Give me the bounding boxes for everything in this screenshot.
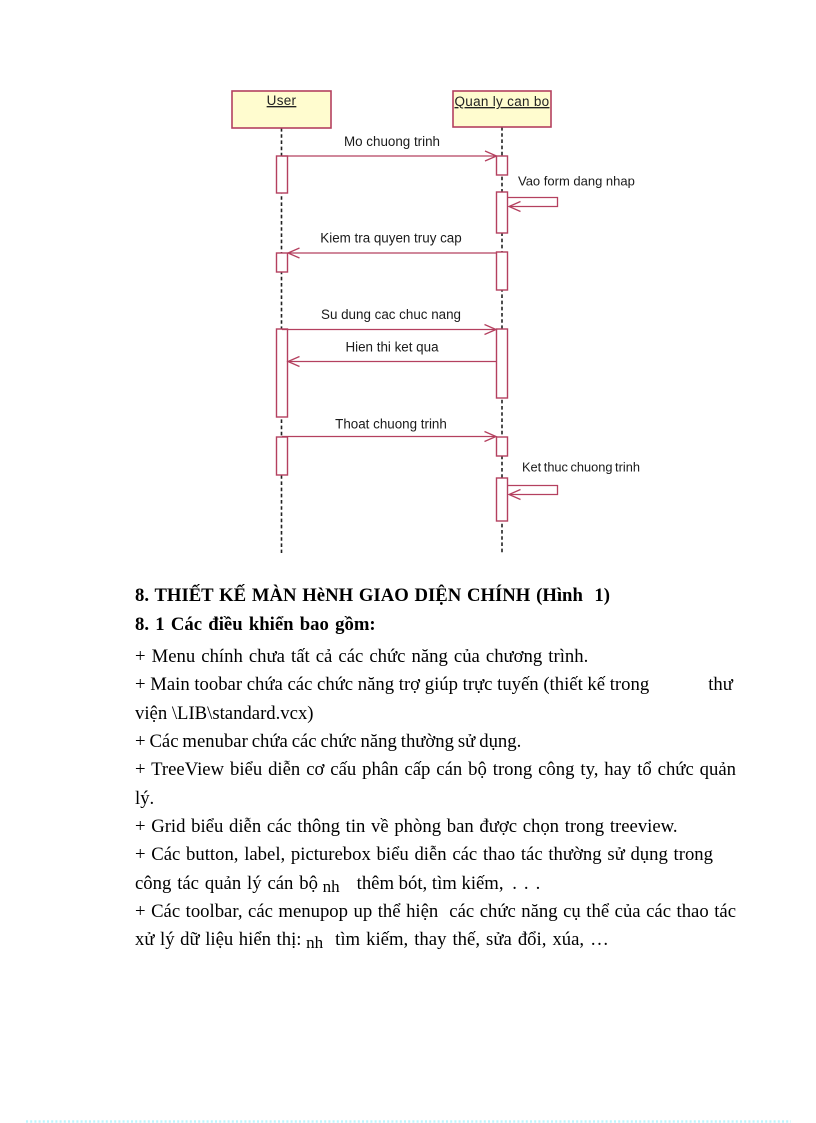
svg-text:Vao form dang nhap: Vao form dang nhap — [518, 174, 635, 189]
svg-text:Ket thuc chuong trinh: Ket thuc chuong trinh — [522, 460, 640, 475]
svg-text:User: User — [267, 93, 297, 108]
svg-text:Quan ly can bo: Quan ly can bo — [454, 94, 549, 109]
svg-text:Thoat chuong trinh: Thoat chuong trinh — [335, 417, 447, 432]
svg-text:Hien thi ket qua: Hien thi ket qua — [345, 340, 439, 355]
svg-text:Kiem tra quyen truy cap: Kiem tra quyen truy cap — [320, 231, 461, 246]
svg-text:Su dung cac chuc nang: Su dung cac chuc nang — [321, 307, 461, 322]
svg-text:Mo chuong trinh: Mo chuong trinh — [344, 134, 440, 149]
